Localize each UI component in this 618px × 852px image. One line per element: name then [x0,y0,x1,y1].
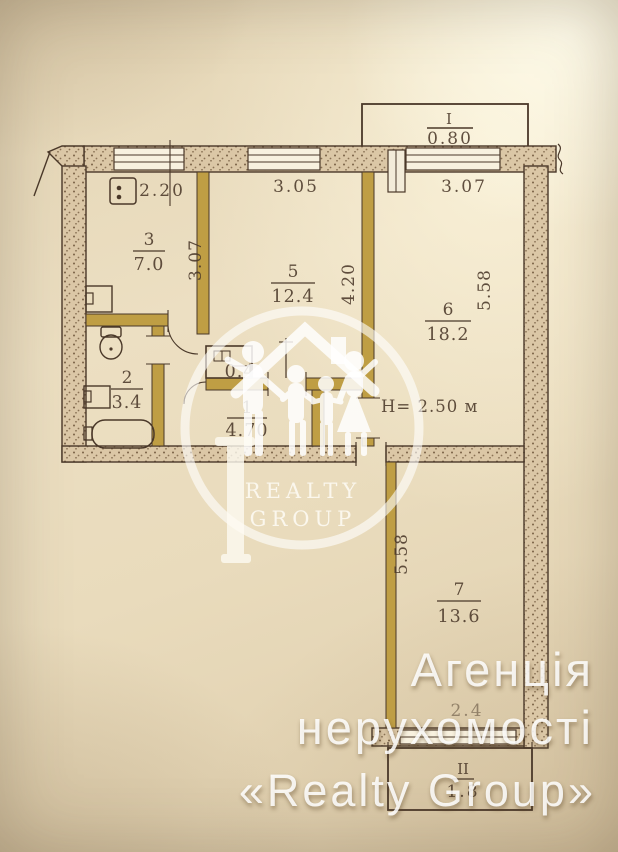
room6-area: 18.2 [427,325,470,345]
window-room6 [406,148,500,170]
bathtub-icon [84,420,154,448]
balcony-top: I 0.80 [362,104,528,150]
balcony-door [388,150,405,192]
room6-number: 6 [443,300,454,320]
room-labels: 3 7.0 5 12.4 6 18.2 2 3.4 1 4.70 7 13.6 [111,230,481,627]
room-label-kitchen: 3 7.0 [133,230,165,275]
room5-area: 12.4 [272,287,315,307]
watermark-agency-text: Агенція нерухомості «Realty Group» [239,643,596,816]
washbasin-icon [84,386,110,408]
dim-room5-depth: 4.20 [339,263,359,305]
ceiling-height-label: H= 2.50 м [381,397,478,416]
toilet-icon [100,327,122,359]
floor-plan-photo-page: { "plan": { "labels": { "kitchen_no": "3… [0,0,618,852]
room5-number: 5 [288,262,299,282]
agency-line-1: Агенція [411,643,594,696]
dim-room7-depth: 5.58 [392,533,412,575]
agency-line-3: «Realty Group» [239,765,596,816]
logo-text-realty: REALTY [245,479,361,503]
agency-line-2: нерухомості [297,701,594,754]
room-label-bath: 2 3.4 [111,368,143,413]
room-label-6: 6 18.2 [425,300,471,345]
dim-room5-width: 3.05 [273,177,319,197]
window-room5 [248,148,320,170]
watermark-logo: REALTY GROUP [185,311,419,563]
room2-area: 3.4 [112,393,143,413]
wall-break-mark [558,144,563,174]
logo-text-group: GROUP [250,507,357,531]
wall-bath-hall-a [152,326,164,336]
room-label-5: 5 12.4 [271,262,315,307]
balcony-top-numeral: I [446,110,452,128]
room3-number: 3 [144,230,155,250]
dim-kitchen-width: 2.20 [139,181,185,201]
kitchen-door-arc [168,326,198,354]
room7-number: 7 [454,580,465,600]
dim-room6-depth: 5.58 [475,269,495,311]
floor-plan-drawing: I 0.80 [0,0,618,852]
room2-number: 2 [122,368,133,388]
logo-chimney [331,337,346,364]
room7-area: 13.6 [438,607,481,627]
dim-room6-width: 3.07 [441,177,487,197]
dim-kitchen-depth: 3.07 [186,239,206,281]
wall-kitchen-bath [86,314,168,326]
kitchen-sink-icon [86,286,112,312]
stove-icon [110,178,136,204]
wall-left [62,166,86,462]
room3-area: 7.0 [134,255,165,275]
room-label-7: 7 13.6 [437,580,481,627]
window-kitchen [114,148,184,170]
wall-room6-bottom [386,446,524,462]
